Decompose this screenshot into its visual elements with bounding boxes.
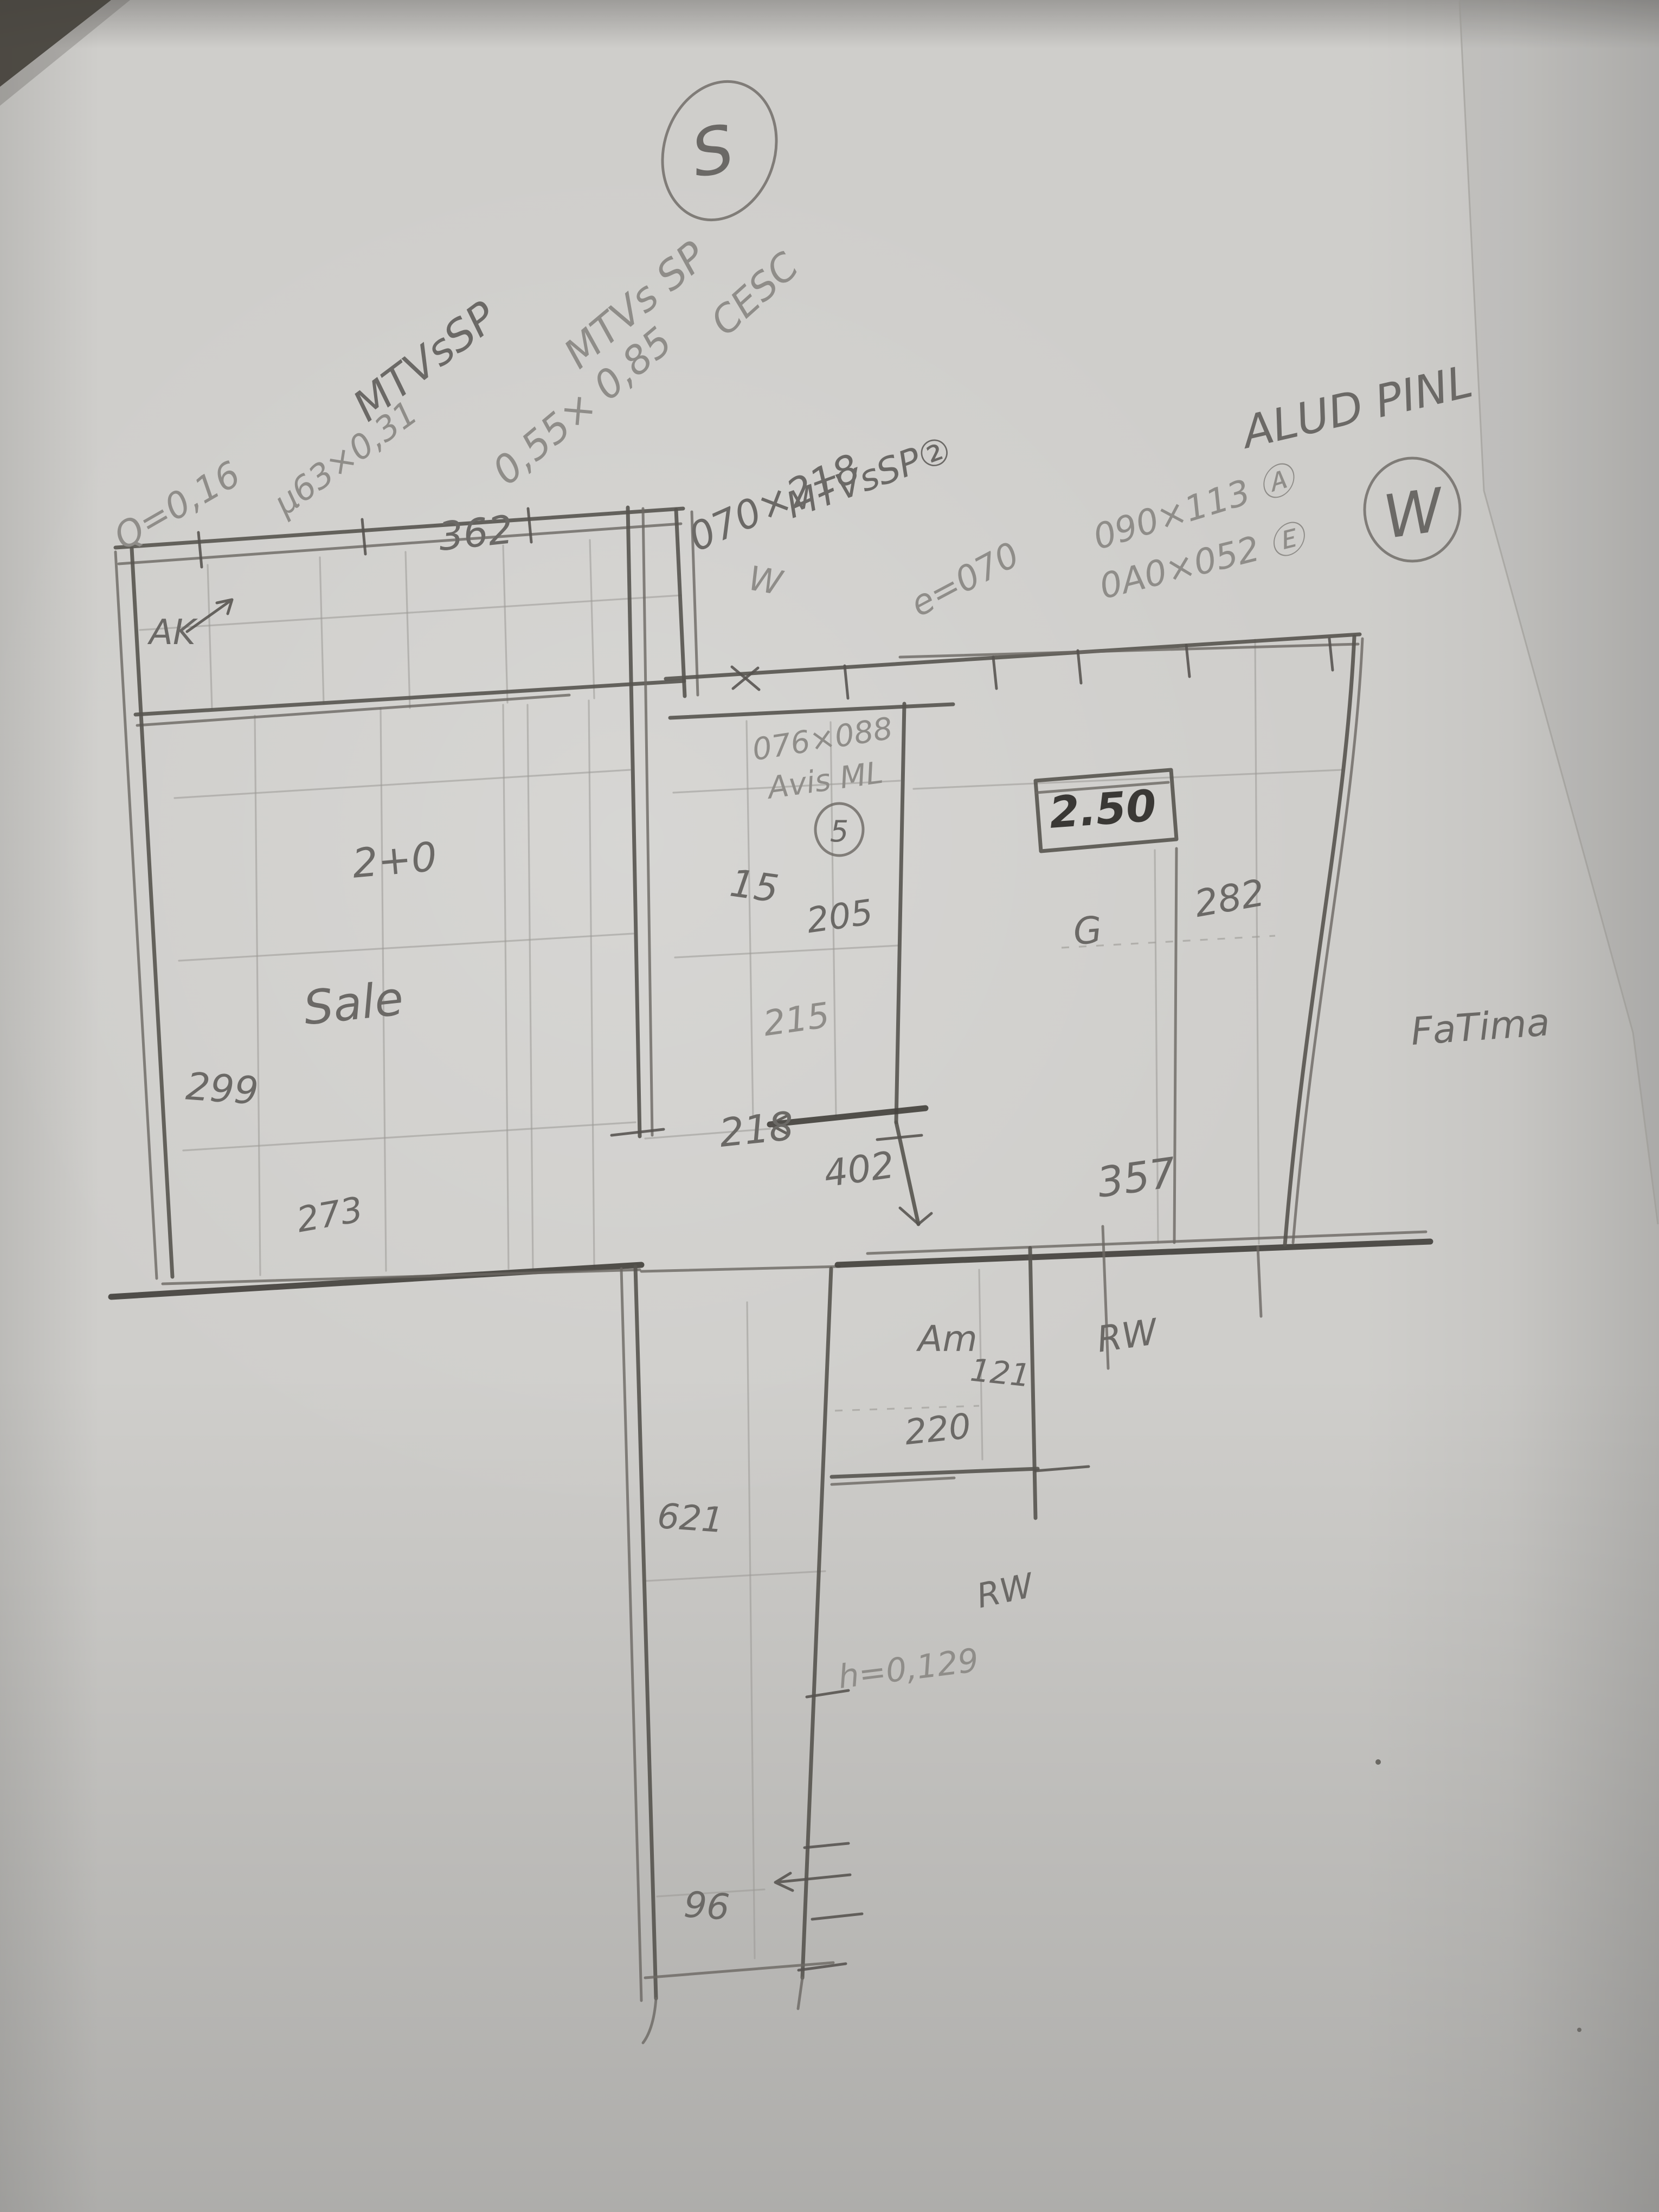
label-d357: 357 [1094,1148,1179,1207]
label-rw-upper: RW [1094,1310,1161,1360]
label-d218: 218 [717,1103,796,1156]
label-d121: 121 [968,1352,1032,1394]
label-dim-163: µ63×0,31 [266,393,425,523]
label-w-door: W [745,558,787,603]
label-d215: 215 [761,995,832,1044]
pencil-dot [1577,2028,1581,2032]
label-d402: 402 [821,1144,897,1196]
label-d205: 205 [804,892,875,941]
tick-marks-layer [187,509,1333,1970]
label-d96: 96 [683,1883,731,1928]
label-s-compass: S [686,111,740,192]
label-e-070: e=070 [904,535,1026,625]
label-alud-pinl: ALUD PINL [1235,356,1477,459]
label-d2-0: 2+0 [350,833,439,887]
label-mtv-sp-2b: MTVsSP② [781,428,957,526]
floorplan-sketch-svg: SWMTVsSPQ=0,16µ63×0,31MTVs SP0,55× 0,85C… [0,0,1659,2212]
label-circ5: 5 [830,814,848,848]
pencil-dot [1375,1759,1381,1765]
label-d621: 621 [656,1496,725,1541]
label-g-mark: G [1071,909,1103,954]
label-d299: 299 [184,1064,260,1113]
label-d273: 273 [294,1189,366,1240]
label-sale: Sale [301,972,406,1036]
photo-of-sketch: SWMTVsSPQ=0,16µ63×0,31MTVs SP0,55× 0,85C… [0,0,1659,2212]
label-d15: 15 [728,860,782,911]
label-d220: 220 [903,1406,973,1453]
label-w-compass: W [1379,475,1450,552]
label-boxed-250: 2.50 [1047,780,1158,838]
label-h-0129: h=0,129 [836,1642,981,1696]
label-d362: 362 [436,506,515,560]
label-rw-lower: RW [973,1565,1038,1616]
label-am: Am [916,1318,977,1360]
label-ak: AK [147,613,198,653]
labels-layer: SWMTVsSPQ=0,16µ63×0,31MTVs SP0,55× 0,85C… [107,111,1551,1928]
label-cesc: CESC [702,243,807,344]
label-mtv-sp-1: MTVsSP [344,292,506,431]
label-fatima: FaTima [1410,1000,1552,1054]
